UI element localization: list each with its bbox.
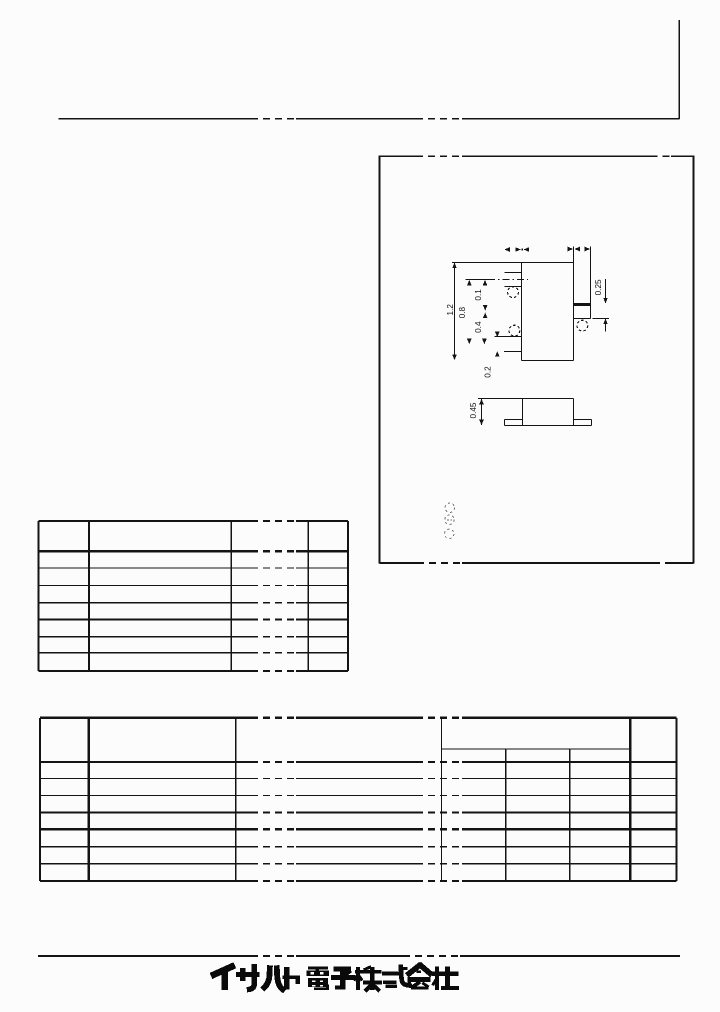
svg-text:0.1: 0.1 — [474, 289, 483, 301]
svg-text:0.2: 0.2 — [483, 366, 492, 378]
svg-text:0.25: 0.25 — [594, 279, 603, 295]
svg-text:0.8: 0.8 — [458, 306, 467, 318]
svg-text:1.2: 1.2 — [446, 304, 455, 316]
svg-text:0.45: 0.45 — [469, 402, 478, 418]
svg-text:0.4: 0.4 — [474, 321, 483, 333]
